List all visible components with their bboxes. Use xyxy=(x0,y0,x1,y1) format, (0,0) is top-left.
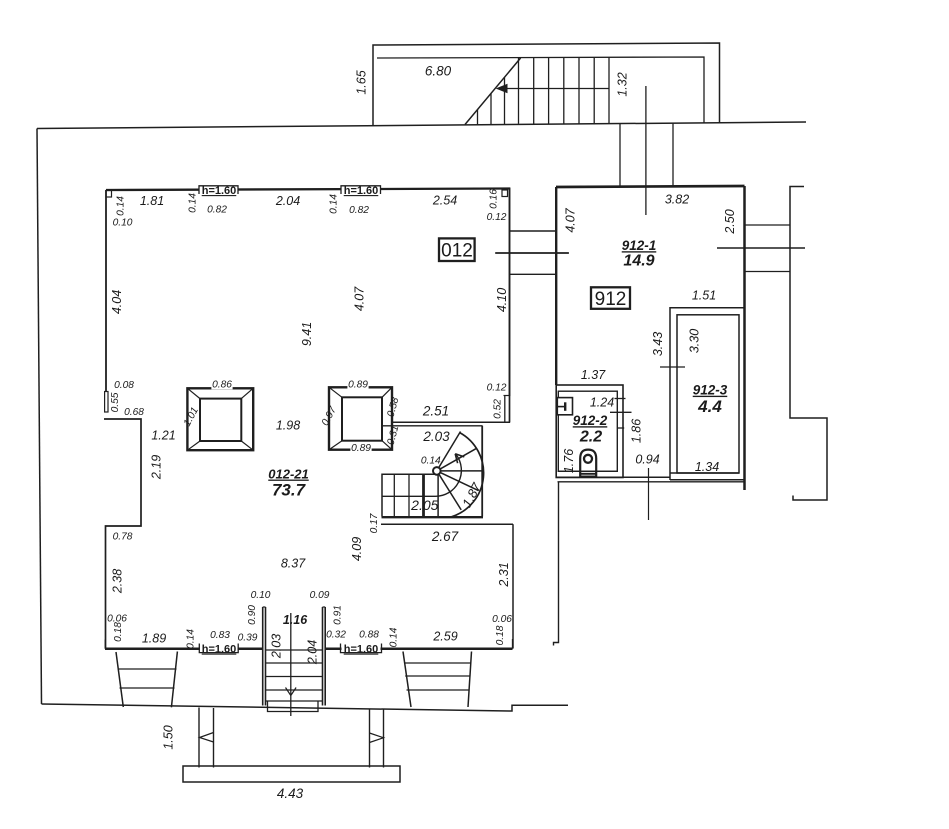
svg-text:1.65: 1.65 xyxy=(354,70,368,94)
svg-text:1.51: 1.51 xyxy=(692,288,716,302)
svg-text:4.09: 4.09 xyxy=(350,537,364,561)
svg-text:012-21: 012-21 xyxy=(268,467,308,482)
svg-text:1.21: 1.21 xyxy=(151,428,175,442)
svg-text:1.16: 1.16 xyxy=(283,613,308,627)
svg-text:0.94: 0.94 xyxy=(635,452,659,466)
svg-text:2.19: 2.19 xyxy=(149,455,163,480)
svg-text:0.68: 0.68 xyxy=(124,407,144,418)
svg-text:1.76: 1.76 xyxy=(562,449,576,473)
svg-text:0.10: 0.10 xyxy=(113,218,133,229)
svg-text:2.2: 2.2 xyxy=(579,429,602,446)
svg-text:0.18: 0.18 xyxy=(113,622,124,642)
svg-text:912-1: 912-1 xyxy=(622,238,657,253)
svg-text:2.51: 2.51 xyxy=(422,404,449,419)
svg-text:6.80: 6.80 xyxy=(425,64,452,79)
svg-text:1.86: 1.86 xyxy=(629,419,643,443)
svg-text:0.12: 0.12 xyxy=(487,383,507,394)
svg-text:4.43: 4.43 xyxy=(277,786,304,801)
svg-text:2.03: 2.03 xyxy=(269,634,283,659)
svg-text:2.50: 2.50 xyxy=(723,209,737,234)
svg-text:0.39: 0.39 xyxy=(238,633,258,644)
svg-text:h=1.60: h=1.60 xyxy=(344,644,379,656)
svg-text:0.14: 0.14 xyxy=(186,629,197,649)
svg-text:0.06: 0.06 xyxy=(492,614,512,625)
svg-text:0.82: 0.82 xyxy=(349,205,369,216)
svg-text:4.4: 4.4 xyxy=(697,397,722,416)
svg-text:4.07: 4.07 xyxy=(563,207,577,232)
svg-text:0.89: 0.89 xyxy=(351,443,371,454)
svg-text:0.14: 0.14 xyxy=(116,196,127,216)
svg-text:1.32: 1.32 xyxy=(615,72,629,96)
svg-text:4.07: 4.07 xyxy=(352,286,366,311)
svg-text:0.12: 0.12 xyxy=(487,212,507,223)
svg-text:0.32: 0.32 xyxy=(326,630,346,641)
svg-text:2.38: 2.38 xyxy=(110,569,124,594)
svg-text:2.04: 2.04 xyxy=(275,194,300,208)
svg-text:0.08: 0.08 xyxy=(114,380,134,391)
svg-text:912-2: 912-2 xyxy=(573,413,608,428)
svg-text:9.41: 9.41 xyxy=(300,322,314,346)
svg-text:0.10: 0.10 xyxy=(251,590,271,601)
svg-text:0.88: 0.88 xyxy=(359,630,379,641)
svg-text:0.55: 0.55 xyxy=(110,392,121,412)
svg-text:0.09: 0.09 xyxy=(310,590,330,601)
svg-text:2.54: 2.54 xyxy=(432,193,457,207)
svg-text:0.52: 0.52 xyxy=(493,399,504,419)
svg-text:0.83: 0.83 xyxy=(210,630,230,641)
svg-text:2.05: 2.05 xyxy=(410,497,438,513)
svg-text:912-3: 912-3 xyxy=(693,383,728,398)
svg-text:3.30: 3.30 xyxy=(687,329,701,353)
svg-text:1.37: 1.37 xyxy=(581,368,606,382)
svg-text:1.81: 1.81 xyxy=(140,194,164,208)
svg-text:0.86: 0.86 xyxy=(212,380,232,391)
svg-text:0.14: 0.14 xyxy=(188,193,199,213)
svg-text:2.67: 2.67 xyxy=(431,529,459,544)
svg-text:0.78: 0.78 xyxy=(113,532,133,543)
svg-text:0.17: 0.17 xyxy=(369,513,380,533)
svg-text:4.04: 4.04 xyxy=(110,290,124,314)
svg-text:h=1.60: h=1.60 xyxy=(344,185,379,197)
svg-text:1.50: 1.50 xyxy=(161,725,175,749)
svg-text:0.91: 0.91 xyxy=(333,605,344,625)
svg-text:h=1.60: h=1.60 xyxy=(202,644,237,656)
svg-text:14.9: 14.9 xyxy=(623,253,654,270)
svg-text:0.14: 0.14 xyxy=(421,455,441,466)
svg-text:0.82: 0.82 xyxy=(207,205,227,216)
svg-text:73.7: 73.7 xyxy=(272,480,307,499)
svg-text:912: 912 xyxy=(595,289,627,310)
svg-text:2.31: 2.31 xyxy=(497,562,511,587)
svg-text:012: 012 xyxy=(441,240,473,261)
svg-text:1.24: 1.24 xyxy=(590,395,614,409)
svg-text:0.16: 0.16 xyxy=(489,189,500,209)
svg-text:2.03: 2.03 xyxy=(422,429,450,444)
svg-text:0.18: 0.18 xyxy=(495,625,506,645)
svg-text:0.14: 0.14 xyxy=(329,194,340,214)
svg-text:1.89: 1.89 xyxy=(142,631,166,645)
svg-text:1.98: 1.98 xyxy=(276,418,300,432)
svg-text:0.14: 0.14 xyxy=(389,627,400,647)
svg-text:4.10: 4.10 xyxy=(495,288,509,312)
svg-text:0.90: 0.90 xyxy=(247,605,258,625)
svg-text:2.59: 2.59 xyxy=(432,629,457,643)
svg-text:3.43: 3.43 xyxy=(651,332,665,356)
svg-text:3.82: 3.82 xyxy=(665,192,689,206)
svg-text:2.04: 2.04 xyxy=(305,640,319,665)
svg-text:8.37: 8.37 xyxy=(281,556,306,570)
svg-text:0.89: 0.89 xyxy=(348,380,368,391)
svg-text:h=1.60: h=1.60 xyxy=(202,185,237,197)
svg-text:1.34: 1.34 xyxy=(695,460,719,474)
